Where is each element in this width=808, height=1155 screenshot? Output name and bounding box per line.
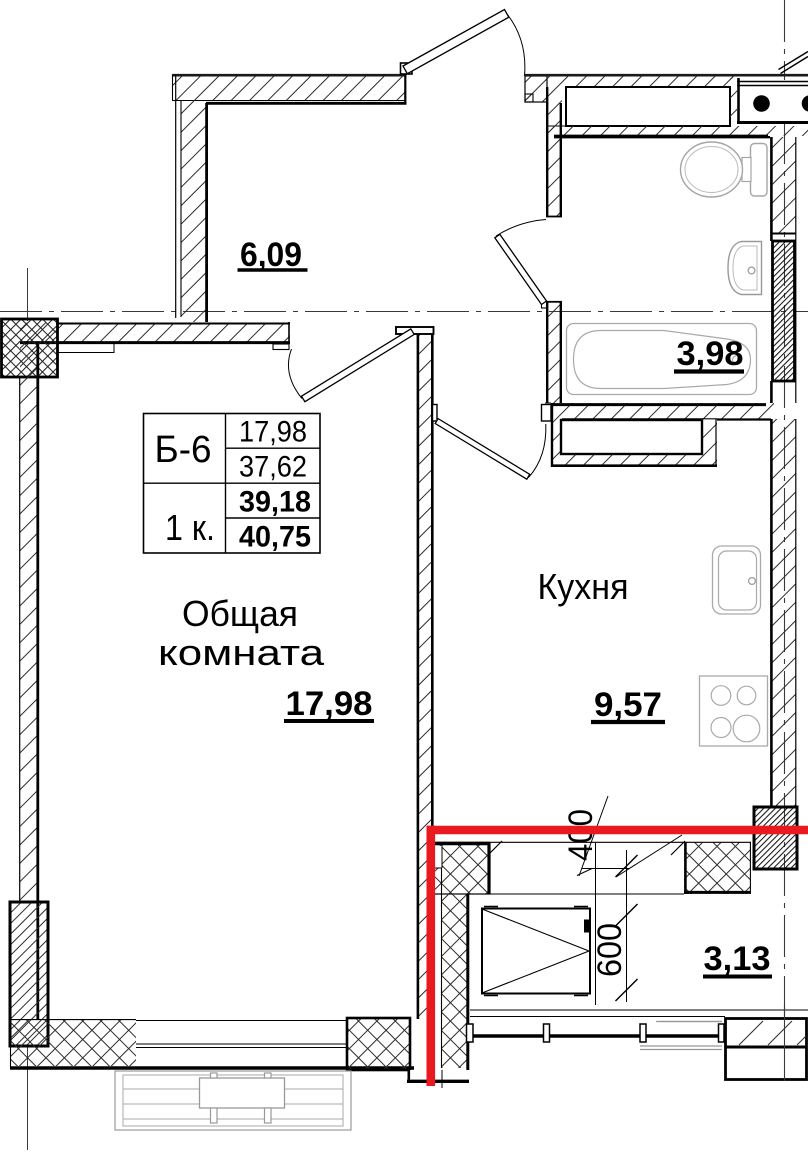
svg-text:1 к.: 1 к.: [165, 507, 215, 548]
svg-text:Б-6: Б-6: [155, 429, 212, 471]
svg-text:3,98: 3,98: [677, 335, 744, 373]
svg-text:Общая: Общая: [182, 593, 298, 634]
svg-text:3,13: 3,13: [704, 940, 771, 978]
svg-text:17,98: 17,98: [286, 685, 373, 723]
svg-text:17,98: 17,98: [239, 416, 307, 449]
svg-text:Кухня: Кухня: [538, 566, 629, 607]
svg-text:37,62: 37,62: [239, 451, 307, 484]
svg-text:40,75: 40,75: [239, 521, 311, 554]
svg-text:комната: комната: [158, 632, 325, 673]
svg-text:39,18: 39,18: [239, 486, 311, 519]
svg-text:600: 600: [591, 923, 629, 977]
svg-text:400: 400: [562, 809, 600, 861]
svg-text:9,57: 9,57: [594, 686, 662, 724]
